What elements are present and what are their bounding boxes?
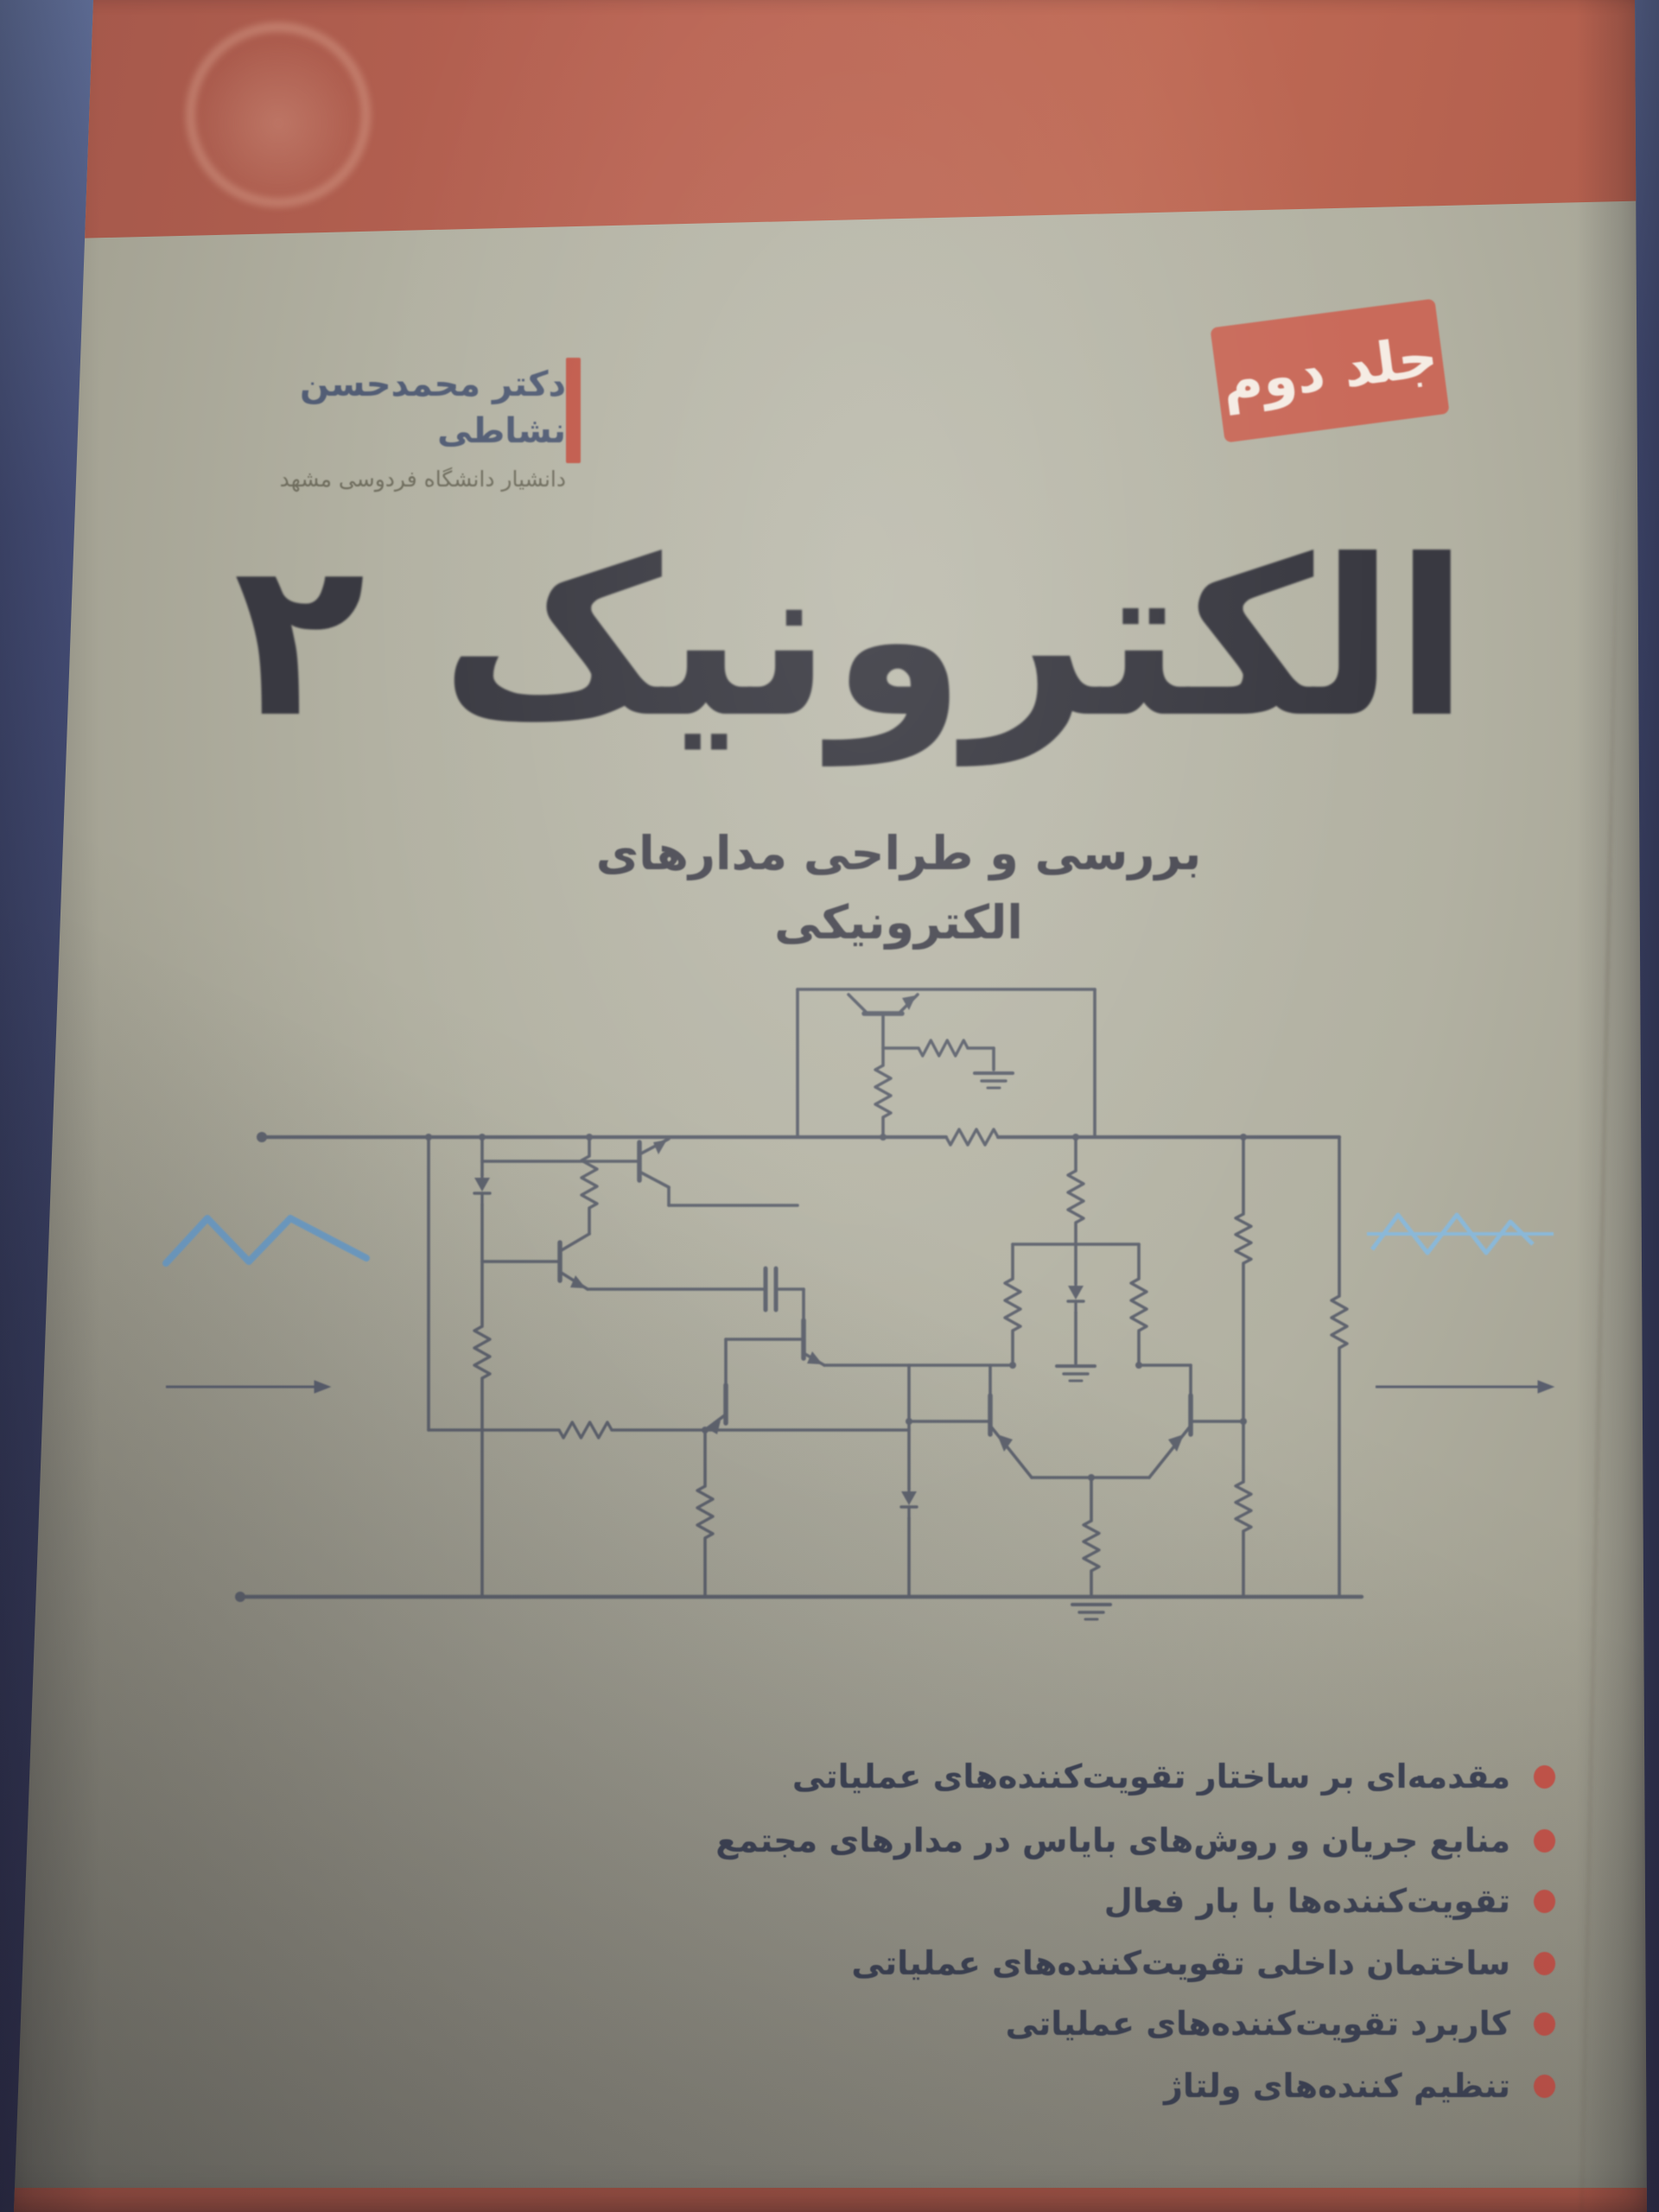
university-emblem-watermark [186,22,371,207]
topic-text: کاربرد تقویت‌کننده‌های عملیاتی [1006,1999,1510,2048]
edition-badge: جلد دوم [1210,298,1449,442]
topic-item: کاربرد تقویت‌کننده‌های عملیاتی [709,1999,1555,2048]
topic-text: تقویت‌کننده‌ها با بار فعال [1104,1877,1510,1925]
book-cover-photo: { "image_type": "photograph of the front… [0,0,1659,2212]
topic-item: تنظیم کننده‌های ولتاژ [709,2062,1555,2110]
cover-bottom-band [0,2188,1659,2212]
cover-top-band [0,0,1659,259]
bullet-dot-icon [1534,2075,1555,2098]
topic-item: مقدمه‌ای بر ساختار تقویت‌کننده‌های عملیا… [709,1752,1555,1801]
topic-item: تقویت‌کننده‌ها با بار فعال [709,1877,1555,1925]
author-name: دکتر محمدحسن نشاطی [252,361,566,454]
bullet-dot-icon [1534,2012,1555,2036]
topic-item: منابع جریان و روش‌های بایاس در مدارهای م… [709,1816,1555,1865]
bullet-dot-icon [1534,1952,1555,1975]
book-title: الکترونیک ۲ [177,467,1525,821]
topic-text: منابع جریان و روش‌های بایاس در مدارهای م… [715,1816,1510,1865]
bullet-dot-icon [1534,1890,1555,1913]
author-accent-bar [566,358,581,463]
output-flow-arrow [1376,1381,1554,1393]
opamp-circuit-illustration [121,916,1607,1780]
input-waveform-icon [166,1218,366,1263]
topic-text: تنظیم کننده‌های ولتاژ [1164,2062,1510,2110]
topic-text: ساختمان داخلی تقویت‌کننده‌های عملیاتی [851,1939,1510,1987]
bullet-dot-icon [1534,1829,1555,1853]
book-cover: دکتر محمدحسن نشاطی دانشیار دانشگاه فردوس… [0,0,1659,2212]
bullet-dot-icon [1534,1765,1555,1789]
input-flow-arrow [166,1381,330,1393]
topic-item: ساختمان داخلی تقویت‌کننده‌های عملیاتی [709,1939,1555,1987]
topic-text: مقدمه‌ای بر ساختار تقویت‌کننده‌های عملیا… [792,1752,1510,1801]
